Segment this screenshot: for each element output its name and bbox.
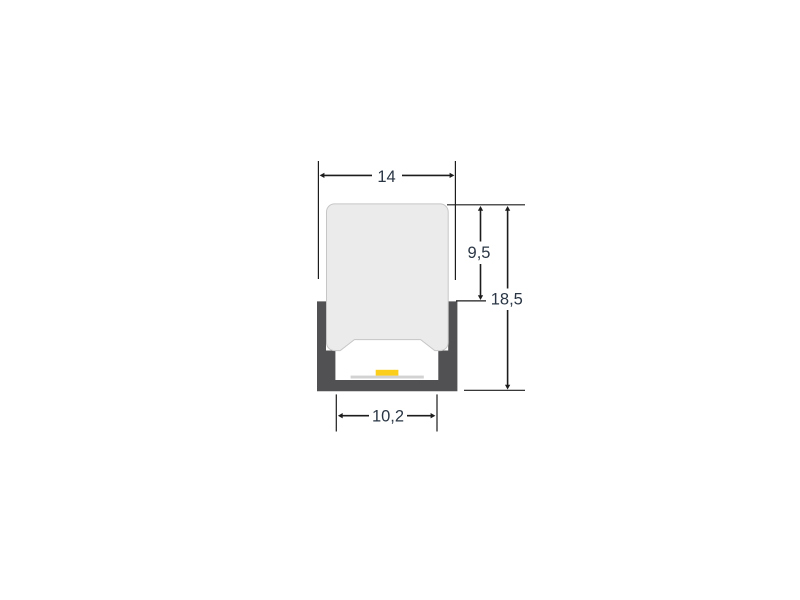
svg-text:9,5: 9,5 — [468, 244, 491, 262]
svg-text:18,5: 18,5 — [491, 291, 523, 309]
svg-text:10,2: 10,2 — [372, 408, 404, 426]
svg-text:14: 14 — [377, 168, 395, 186]
